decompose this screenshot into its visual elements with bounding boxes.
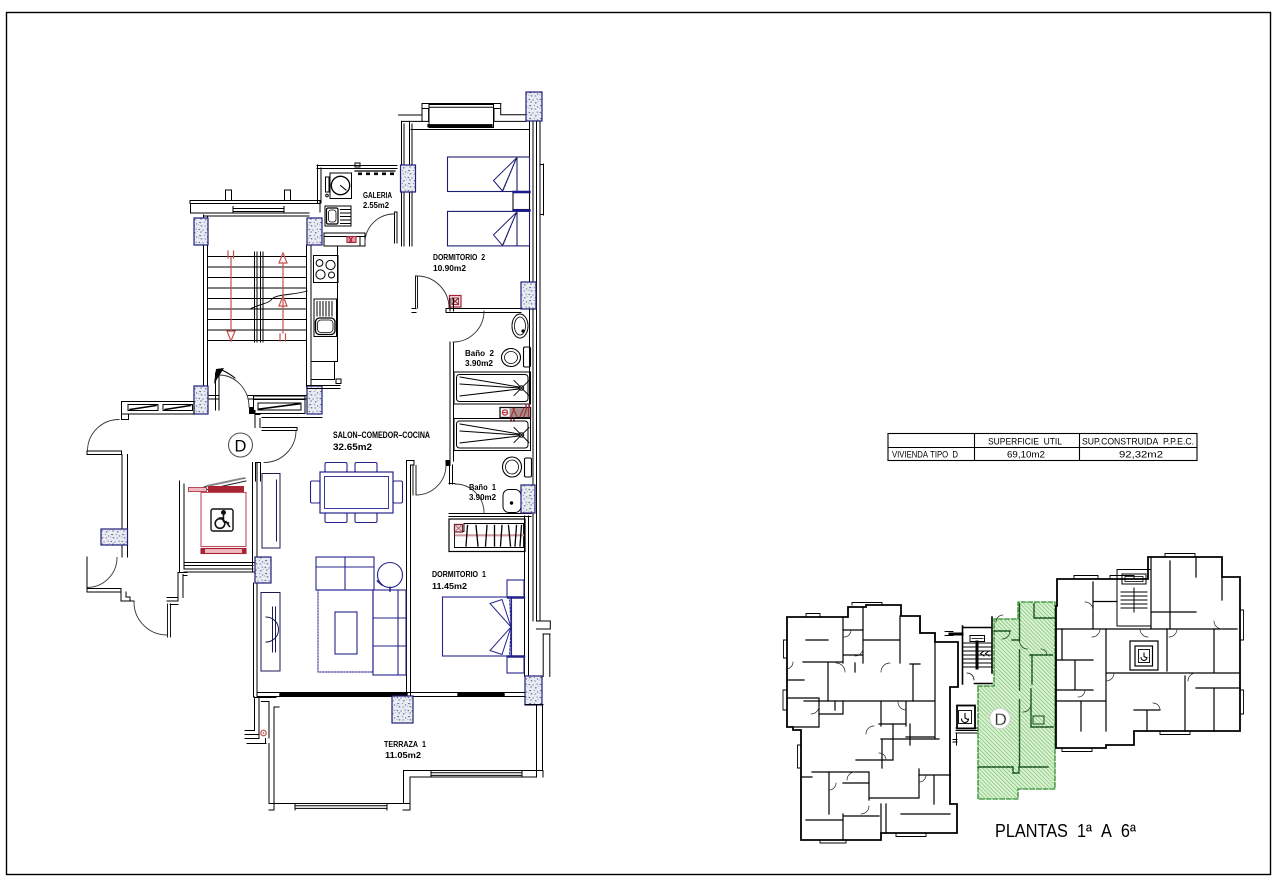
svg-text:DORMITORIO 2: DORMITORIO 2 (433, 253, 485, 262)
svg-text:TERRAZA 1: TERRAZA 1 (384, 740, 426, 749)
svg-text:D: D (235, 438, 247, 456)
svg-text:2.55m2: 2.55m2 (363, 201, 390, 210)
svg-text:VIVIENDA TIPO D: VIVIENDA TIPO D (892, 450, 958, 460)
svg-text:11.05m2: 11.05m2 (385, 751, 422, 760)
svg-text:SUPERFICIE UTIL: SUPERFICIE UTIL (988, 437, 1062, 448)
svg-text:69,10m2: 69,10m2 (1007, 450, 1045, 461)
svg-text:GALERIA: GALERIA (363, 191, 392, 200)
svg-text:DORMITORIO 1: DORMITORIO 1 (432, 570, 486, 579)
svg-text:92,32m2: 92,32m2 (1119, 450, 1163, 461)
svg-text:11.45m2: 11.45m2 (432, 582, 468, 591)
svg-text:Baño 2: Baño 2 (465, 349, 495, 358)
svg-text:3.90m2: 3.90m2 (465, 359, 494, 368)
svg-text:3.90m2: 3.90m2 (469, 493, 497, 502)
svg-text:D: D (995, 710, 1007, 729)
svg-text:10.90m2: 10.90m2 (433, 264, 467, 273)
svg-text:SALON–COMEDOR–COCINA: SALON–COMEDOR–COCINA (333, 430, 430, 440)
svg-text:32.65m2: 32.65m2 (333, 442, 372, 452)
svg-text:SUP.CONSTRUIDA P.P.E.C.: SUP.CONSTRUIDA P.P.E.C. (1082, 437, 1194, 448)
svg-text:PLANTAS 1ª A 6ª: PLANTAS 1ª A 6ª (995, 821, 1136, 841)
